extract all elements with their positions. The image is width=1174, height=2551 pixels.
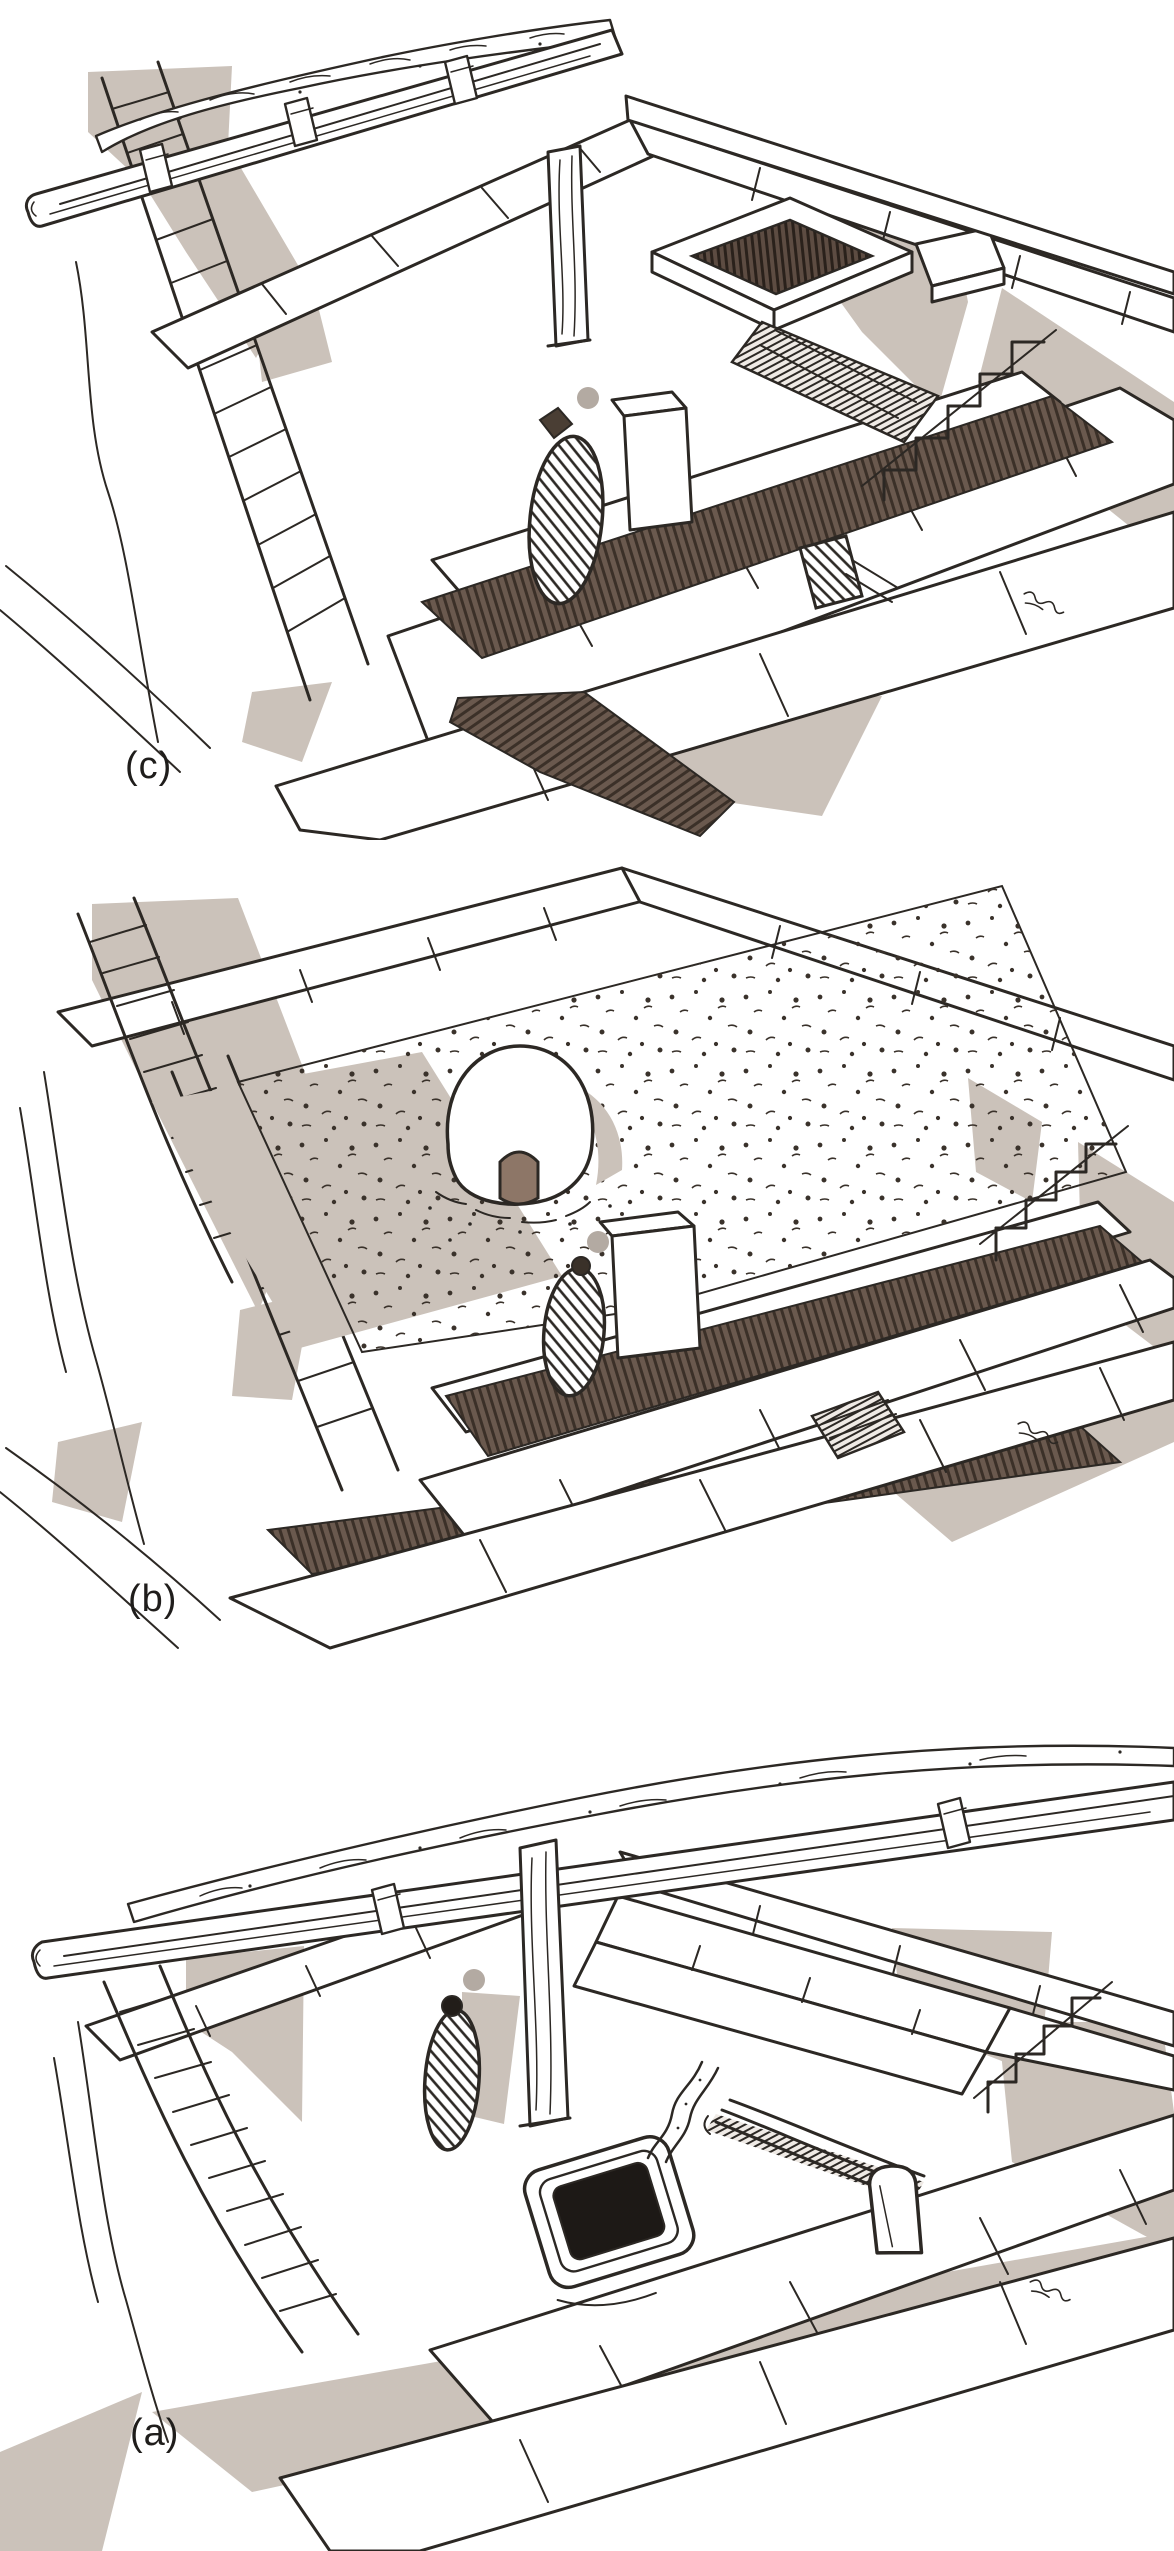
small-stone-block [540, 408, 572, 438]
gray-dot-marker [463, 1969, 485, 1991]
stone-top-knob [572, 1257, 590, 1275]
oven-doorway [500, 1152, 538, 1204]
stone-wall-front [280, 2115, 1174, 2551]
gray-dot-marker [587, 1231, 609, 1253]
figure-page: (c) [0, 0, 1174, 2551]
panel-label-b: (b) [128, 1578, 177, 1621]
stone-top-knob [442, 1996, 462, 2016]
illustration-c [0, 0, 1174, 840]
panel-label-a: (a) [130, 2412, 179, 2455]
figure-panel-b: (b) [0, 840, 1174, 1690]
ground-contours [54, 2022, 168, 2442]
illustration-b [0, 840, 1174, 1690]
gray-dot-marker [577, 387, 599, 409]
standing-stone [420, 2008, 484, 2151]
figure-panel-c: (c) [0, 0, 1174, 840]
panel-label-c: (c) [125, 745, 172, 788]
figure-panel-a: (a) [0, 1690, 1174, 2551]
